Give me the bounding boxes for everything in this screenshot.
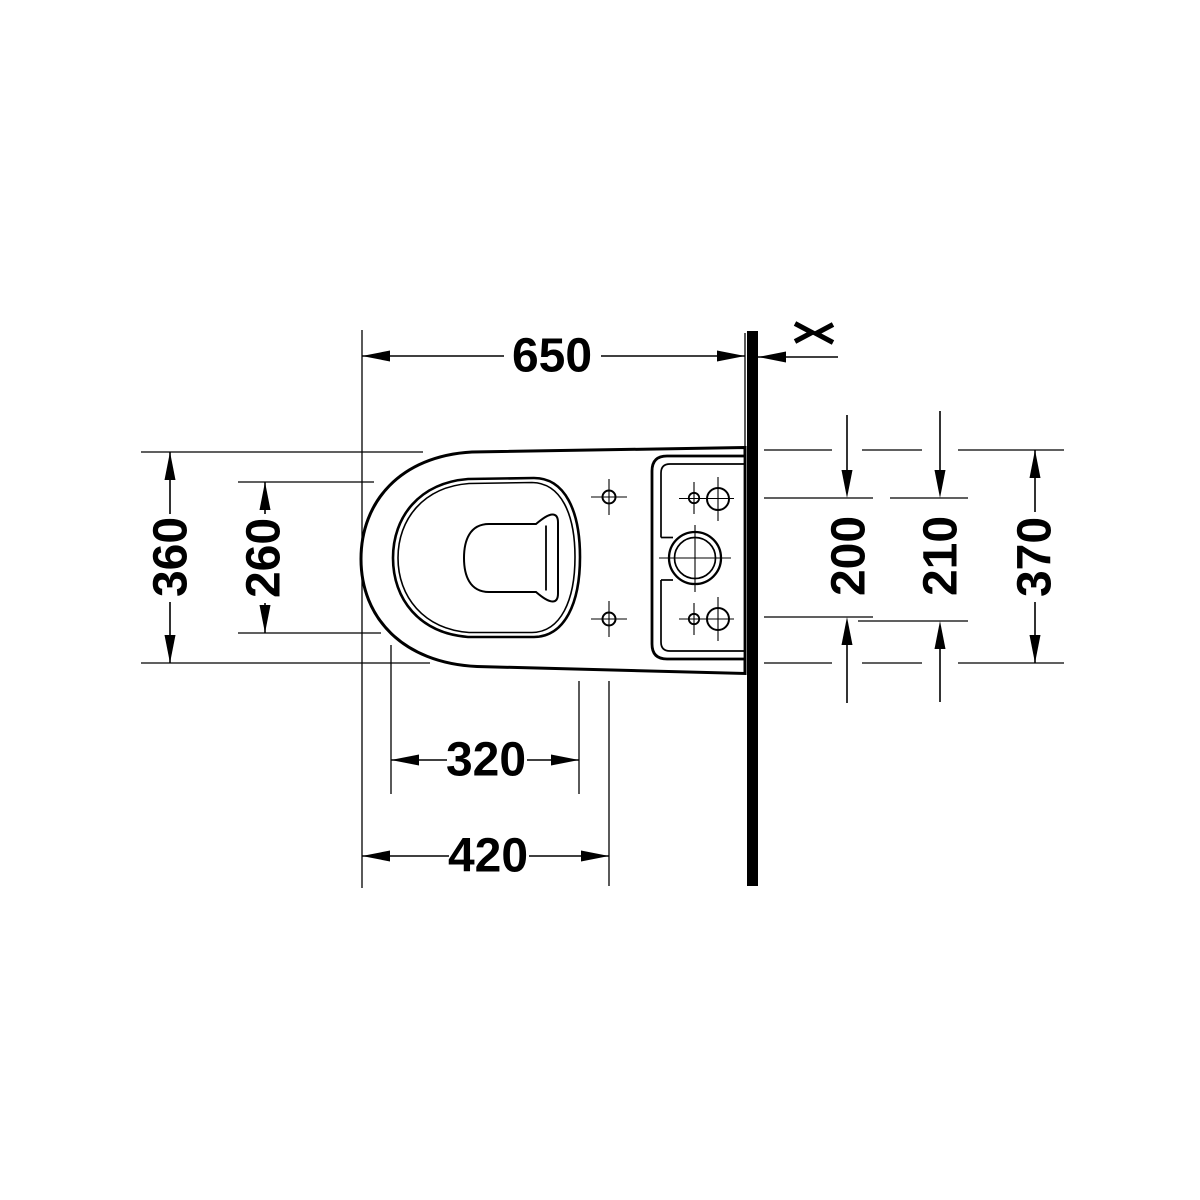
arrowhead-down	[1030, 635, 1041, 663]
arrowhead-up	[935, 621, 946, 649]
arrowhead-up	[260, 482, 271, 510]
arrowhead-up	[165, 452, 176, 480]
cistern	[652, 456, 745, 659]
arrowhead-left	[758, 352, 786, 363]
dim-210: 210	[915, 411, 968, 702]
dim-wall-stub	[758, 324, 838, 363]
arrowhead-down	[935, 470, 946, 498]
drawing-page: 650 360 260 320 420	[0, 0, 1200, 1200]
dim-420-label: 420	[448, 830, 528, 883]
wall-break-icon	[795, 324, 833, 343]
dim-360-label: 360	[145, 517, 198, 597]
dim-420: 420	[362, 830, 609, 883]
arrowhead-up	[842, 617, 853, 645]
arrowhead-down	[165, 635, 176, 663]
dim-200: 200	[823, 415, 876, 703]
dim-260-label: 260	[238, 518, 291, 598]
dim-200-label: 200	[823, 516, 876, 596]
dim-370: 370	[1009, 450, 1062, 663]
arrowhead-down	[260, 605, 271, 633]
dim-320: 320	[391, 734, 579, 787]
dim-370-label: 370	[1009, 517, 1062, 597]
dim-650: 650	[362, 330, 745, 383]
arrowhead-up	[1030, 450, 1041, 478]
dim-320-label: 320	[446, 734, 526, 787]
arrowhead-down	[842, 470, 853, 498]
technical-drawing: 650 360 260 320 420	[0, 0, 1200, 1200]
dim-360: 360	[145, 452, 198, 663]
arrowhead-left	[362, 851, 390, 862]
arrowhead-right	[581, 851, 609, 862]
arrowhead-right	[717, 351, 745, 362]
dim-210-label: 210	[915, 516, 968, 596]
arrowhead-right	[551, 755, 579, 766]
arrowhead-left	[362, 351, 390, 362]
dim-260: 260	[238, 482, 291, 633]
wall-line	[747, 331, 758, 886]
dim-650-label: 650	[512, 330, 592, 383]
arrowhead-left	[391, 755, 419, 766]
